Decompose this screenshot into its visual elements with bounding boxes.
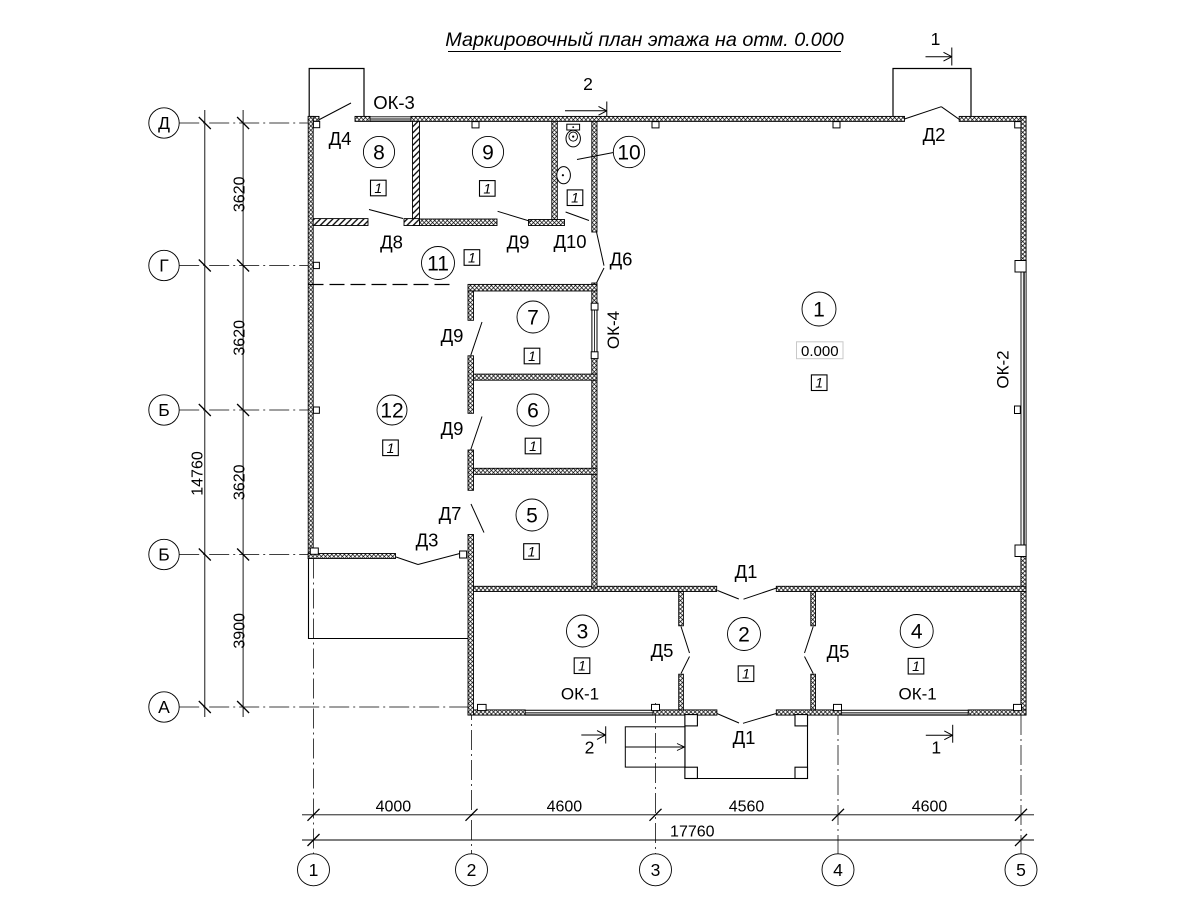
svg-text:1: 1: [374, 180, 382, 196]
svg-text:Д: Д: [158, 113, 170, 133]
svg-text:Д1: Д1: [733, 727, 756, 748]
svg-text:14760: 14760: [190, 451, 207, 496]
svg-text:Б: Б: [158, 400, 169, 420]
svg-text:Д4: Д4: [329, 128, 352, 149]
svg-text:Д9: Д9: [441, 418, 464, 439]
svg-text:4600: 4600: [547, 799, 583, 816]
svg-text:9: 9: [482, 141, 494, 164]
svg-text:3: 3: [577, 620, 589, 643]
svg-text:7: 7: [527, 306, 539, 329]
svg-text:3900: 3900: [232, 613, 249, 649]
svg-text:Д3: Д3: [416, 530, 439, 551]
svg-text:8: 8: [373, 141, 385, 164]
svg-text:ОК-3: ОК-3: [373, 92, 415, 113]
svg-text:Д8: Д8: [380, 232, 403, 253]
svg-text:Д6: Д6: [610, 249, 633, 270]
svg-text:4560: 4560: [729, 799, 765, 816]
svg-text:ОК-4: ОК-4: [604, 311, 623, 349]
svg-text:4000: 4000: [376, 799, 412, 816]
svg-text:Д5: Д5: [827, 641, 850, 662]
svg-text:6: 6: [527, 399, 539, 422]
svg-text:3620: 3620: [232, 464, 249, 500]
svg-text:2: 2: [738, 623, 750, 646]
svg-text:4600: 4600: [912, 799, 948, 816]
svg-text:17760: 17760: [670, 824, 715, 841]
svg-text:1: 1: [529, 438, 537, 454]
svg-text:Маркировочный план этажа на от: Маркировочный план этажа на отм. 0.000: [445, 29, 843, 51]
svg-text:2: 2: [467, 860, 477, 880]
svg-text:1: 1: [912, 658, 920, 674]
svg-text:Д10: Д10: [553, 231, 586, 252]
svg-text:1: 1: [742, 666, 750, 682]
svg-text:12: 12: [380, 399, 403, 422]
svg-text:0.000: 0.000: [801, 343, 839, 360]
svg-text:Г: Г: [159, 256, 169, 276]
svg-text:5: 5: [1016, 860, 1026, 880]
svg-text:1: 1: [813, 298, 825, 321]
svg-text:Д9: Д9: [507, 232, 530, 253]
svg-text:1: 1: [815, 375, 823, 391]
svg-text:1: 1: [571, 190, 579, 206]
svg-text:1: 1: [528, 348, 536, 364]
svg-text:2: 2: [583, 74, 593, 94]
svg-text:Б: Б: [158, 545, 169, 565]
svg-text:3: 3: [651, 860, 661, 880]
svg-text:Д2: Д2: [923, 124, 946, 145]
svg-text:4: 4: [833, 860, 843, 880]
svg-text:1: 1: [931, 29, 941, 49]
svg-text:1: 1: [578, 658, 586, 674]
svg-text:ОК-2: ОК-2: [994, 350, 1013, 388]
svg-text:5: 5: [526, 504, 538, 527]
svg-text:Д9: Д9: [441, 325, 464, 346]
svg-text:А: А: [158, 697, 170, 717]
svg-text:1: 1: [387, 440, 395, 456]
svg-text:3620: 3620: [232, 176, 249, 212]
svg-text:4: 4: [911, 620, 923, 643]
svg-text:2: 2: [585, 738, 595, 758]
svg-text:1: 1: [528, 544, 536, 560]
svg-text:Д5: Д5: [651, 640, 674, 661]
svg-text:1: 1: [468, 250, 476, 266]
svg-text:10: 10: [617, 141, 640, 164]
svg-text:11: 11: [427, 252, 449, 275]
svg-text:1: 1: [483, 180, 491, 196]
svg-text:3620: 3620: [232, 320, 249, 356]
svg-text:Д1: Д1: [735, 561, 758, 582]
svg-text:1: 1: [931, 738, 941, 758]
svg-text:1: 1: [309, 860, 319, 880]
svg-text:ОК-1: ОК-1: [898, 684, 936, 703]
svg-text:ОК-1: ОК-1: [561, 684, 599, 703]
svg-text:Д7: Д7: [439, 503, 462, 524]
